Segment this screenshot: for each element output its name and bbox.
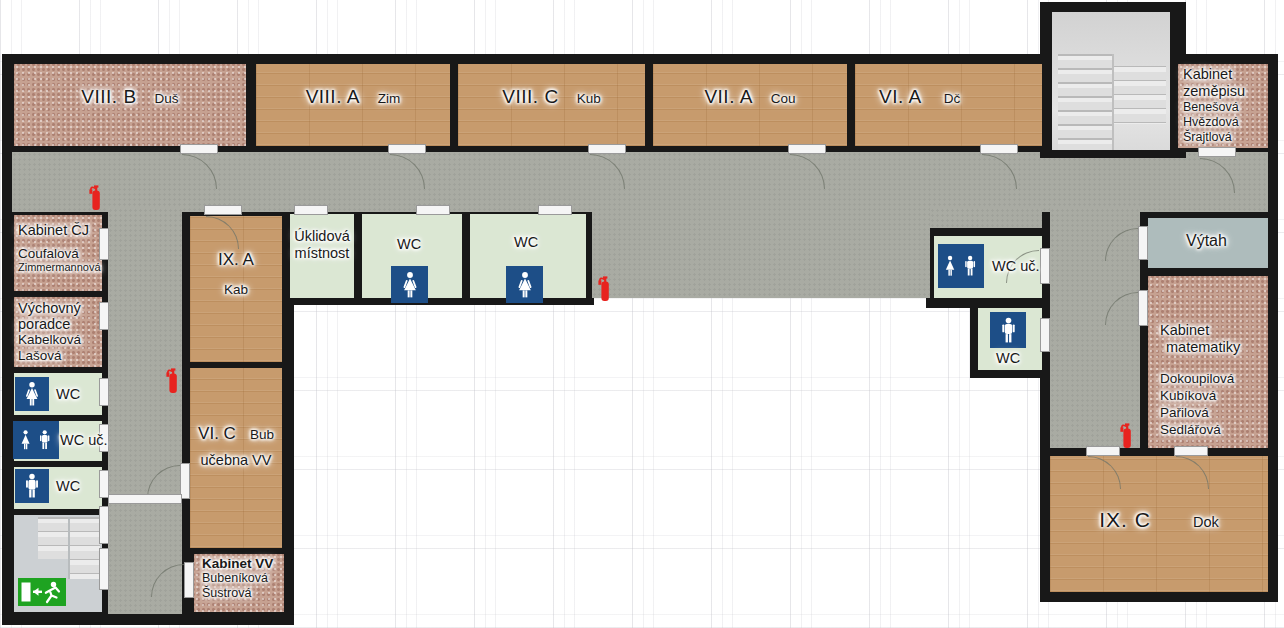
- teacher-code: Zim: [378, 91, 401, 106]
- teacher-code: Dok: [1193, 514, 1219, 530]
- room-label-wc-mid-1: WC: [397, 236, 421, 252]
- room-label-wc-left-teachers: WC uč.: [60, 432, 108, 448]
- corridor: [930, 208, 1042, 228]
- fire-extinguisher-icon: [165, 366, 181, 394]
- door: [99, 378, 109, 406]
- room-label-wc-left-men: WC: [56, 478, 80, 494]
- room-label-viii-b: VIII. B Duš: [14, 86, 246, 108]
- room-code: VI. C: [198, 424, 236, 444]
- door: [416, 205, 450, 215]
- fire-extinguisher-icon: [597, 274, 613, 302]
- room-label-ix-a: IX. A Kab: [190, 250, 282, 297]
- room-code: IX. A: [190, 250, 282, 270]
- teacher-code: Kub: [577, 91, 601, 106]
- emergency-exit-icon: [18, 578, 66, 606]
- room-code: IX. C: [1099, 508, 1151, 532]
- unisex-wc-icon: [13, 421, 59, 459]
- stairwell-top: [1052, 12, 1170, 152]
- room-title: matematiky: [1160, 339, 1240, 356]
- staff-name: Šustrová: [202, 586, 273, 601]
- men-wc-icon: [990, 312, 1026, 348]
- staff-name: Sedlářová: [1160, 421, 1240, 438]
- door: [1174, 446, 1208, 456]
- room-label-vi-c: VI. C Bub učebna VV: [190, 424, 282, 468]
- unisex-wc-icon: [938, 244, 984, 288]
- corridor: [108, 208, 182, 614]
- door: [1086, 446, 1120, 456]
- corridor: [592, 152, 930, 298]
- room-label-kabinet-cj: Kabinet ČJ Coufalová Zimmermannová: [18, 222, 101, 273]
- staff-name: Hvězdová: [1183, 115, 1245, 130]
- fire-extinguisher-icon: [1119, 421, 1135, 449]
- door: [108, 494, 182, 504]
- wall: [1040, 150, 1186, 158]
- teacher-code: Duš: [155, 91, 179, 106]
- room-title: Kabinet: [1160, 322, 1240, 339]
- staff-name: Kabelková: [18, 332, 81, 348]
- room-title: místnost: [290, 245, 354, 262]
- teacher-code: Cou: [771, 91, 796, 106]
- room-title: Úklidová: [290, 228, 354, 245]
- room-label-viii-a: VIII. A Zim: [256, 86, 450, 108]
- door: [99, 302, 109, 330]
- door: [980, 144, 1018, 154]
- teacher-code: Kab: [190, 282, 282, 297]
- women-wc-icon: [506, 266, 543, 303]
- room-label-wc-mid-2: WC: [514, 234, 538, 250]
- stairs-icon: [38, 517, 68, 559]
- teacher-code: Dč: [944, 91, 961, 106]
- women-wc-icon: [391, 266, 428, 303]
- fire-extinguisher-icon: [88, 183, 104, 211]
- staff-name: Coufalová: [18, 246, 101, 261]
- women-wc-icon: [15, 377, 49, 411]
- stair-divider: [68, 517, 70, 579]
- room-label-wc-right-men: WC: [996, 350, 1020, 366]
- stair-divider: [1112, 54, 1114, 152]
- room-code: VII. A: [704, 86, 752, 108]
- door: [1040, 248, 1050, 284]
- room-label-kabinet-matematiky: Kabinet matematiky Dokoupilová Kubíková …: [1160, 322, 1240, 438]
- room-title: Výchovný: [18, 300, 81, 316]
- room-title: Kabinet: [1183, 66, 1245, 83]
- staff-name: Bubeníková: [202, 571, 273, 586]
- door: [588, 144, 626, 154]
- room-label-wc-left-women: WC: [56, 386, 80, 402]
- stairs-icon: [1114, 66, 1166, 124]
- stairs-icon: [70, 517, 100, 579]
- door: [388, 144, 426, 154]
- room-label-viii-c: VIII. C Kub: [458, 86, 645, 108]
- room-label-vytah: Výtah: [1186, 232, 1227, 250]
- staff-name: Dokoupilová: [1160, 370, 1240, 387]
- room-title: poradce: [18, 316, 81, 332]
- room-label-vii-a: VII. A Cou: [653, 86, 847, 108]
- room-code: VI. A: [879, 86, 922, 108]
- men-wc-icon: [15, 469, 49, 503]
- room-label-vychovny-poradce: Výchovný poradce Kabelková Lašová: [18, 300, 81, 364]
- room-title: Kabinet ČJ: [18, 222, 101, 238]
- door: [1138, 290, 1148, 326]
- door: [538, 205, 572, 215]
- room-label-kabinet-vv: Kabinet VV Bubeníková Šustrová: [202, 556, 273, 601]
- door: [788, 144, 826, 154]
- door: [99, 548, 109, 590]
- staff-name: Zimmermannová: [18, 261, 101, 273]
- staff-name: Lašová: [18, 348, 81, 364]
- door: [180, 144, 218, 154]
- room-subtitle: učebna VV: [190, 452, 282, 468]
- floor-plan: VIII. B Duš VIII. A Zim VIII. C Kub VII.…: [0, 0, 1284, 628]
- room-code: VIII. B: [81, 86, 136, 108]
- staff-name: Pařilová: [1160, 404, 1240, 421]
- room-label-ix-c: IX. C Dok: [1050, 508, 1268, 532]
- door: [204, 205, 242, 215]
- room-label-uklidova: Úklidová místnost: [290, 228, 354, 262]
- door: [184, 562, 194, 598]
- door: [294, 205, 328, 215]
- room-title: zeměpisu: [1183, 83, 1245, 100]
- room-code: VIII. A: [306, 86, 360, 108]
- room-code: VIII. C: [502, 86, 558, 108]
- door: [1040, 318, 1050, 352]
- door: [99, 506, 109, 544]
- staff-name: Benešová: [1183, 100, 1245, 115]
- room-label-vi-a: VI. A Dč: [855, 86, 1042, 108]
- room-label-wc-right-teachers: WC uč.: [992, 258, 1040, 274]
- room-label-kabinet-zemepisu: Kabinet zeměpisu Benešová Hvězdová Šrajt…: [1183, 66, 1245, 145]
- staff-name: Šrajtlová: [1183, 130, 1245, 145]
- stairs-icon: [1058, 54, 1112, 152]
- door: [1138, 226, 1148, 260]
- staff-name: Kubíková: [1160, 387, 1240, 404]
- door: [1198, 147, 1236, 157]
- room-title: Kabinet VV: [202, 556, 273, 571]
- teacher-code: Bub: [250, 427, 274, 442]
